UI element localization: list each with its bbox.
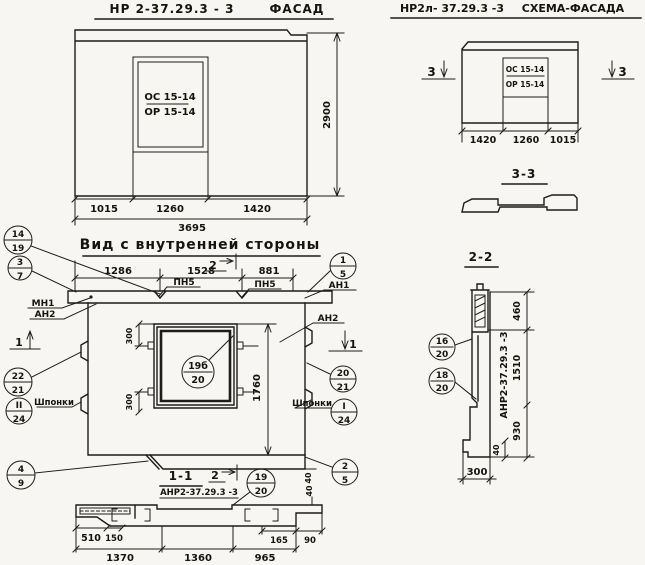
callout-top: 20 — [337, 369, 350, 379]
callout-top: 19 — [255, 473, 268, 483]
section-1-1-dim-965: 965 — [255, 553, 276, 564]
callout-bottom: 21 — [337, 383, 350, 393]
section-2-2-dim-460: 460 — [512, 301, 523, 321]
section-1-1-dim-150: 150 — [105, 534, 123, 544]
section-1-1-stirrups — [112, 509, 278, 521]
facade-dim-1260: 1260 — [156, 204, 184, 215]
section-1-1-dim-510: 510 — [81, 533, 101, 544]
section-2-2-hatch — [475, 295, 485, 327]
inner-section-mark-2: 2 — [209, 259, 217, 272]
facade-window-opening — [133, 57, 208, 152]
facade-window-mark-bottom: ОР 15-14 — [144, 107, 195, 118]
inner-section-mark-1-right-lines — [329, 331, 362, 351]
blueprint-svg: НР 2-37.29.3 - 3 ФАСАД ОС 15-14 ОР 15-14… — [0, 0, 645, 565]
callout-top: 4 — [18, 465, 24, 475]
section-2-2-title: 2-2 — [469, 250, 494, 264]
section-1-1-dim-165-90-line — [259, 528, 325, 534]
schema-section-mark-3-right: 3 — [618, 65, 627, 79]
schema-dim-1420: 1420 — [470, 135, 497, 146]
inner-section-mark-1-right: 1 — [349, 338, 357, 351]
callout-4-9: 4 9 — [7, 461, 148, 489]
callout-22-21: 22 21 — [4, 352, 81, 396]
callout-19-20: 19 20 — [233, 469, 275, 505]
schema-title-code: НР2л- 37.29.3 -3 — [400, 2, 504, 15]
callout-16-20: 16 20 — [429, 334, 455, 360]
inner-pn5-leaders — [159, 287, 281, 297]
facade-window-mark-top: ОС 15-14 — [144, 92, 195, 103]
section-3-3-profile — [462, 195, 577, 212]
facade-dim-total: 3695 — [178, 223, 206, 234]
schema-dim-1015: 1015 — [550, 135, 576, 146]
section-1-1-mark-2: 2 — [211, 469, 219, 482]
callout-top: 22 — [12, 372, 25, 382]
callout-top: 2 — [342, 462, 348, 472]
callout-bottom: 24 — [13, 415, 26, 425]
callout-top: 19б — [188, 361, 208, 372]
inner-top-strip — [68, 291, 332, 303]
schema-window-mark-top: ОС 15-14 — [506, 65, 544, 74]
inner-dim-40: 40 — [304, 472, 313, 484]
section-2-2-callout-leaders — [455, 339, 476, 399]
inner-mn1-anchor-dot — [89, 295, 92, 298]
section-2-2-dim-40-line — [502, 438, 508, 461]
schema-window-opening — [503, 58, 548, 97]
section-2-2-panel-mark: АНР2-37.29.3 -3 — [499, 332, 510, 419]
inner-title: Вид с внутренней стороны — [80, 237, 321, 253]
inner-section-mark-1-left: 1 — [15, 336, 23, 349]
section-2-2-dim-40: 40 — [492, 444, 501, 456]
schema-view: НР2л- 37.29.3 -3 СХЕМА-ФАСАДА ОС 15-14 О… — [391, 2, 641, 146]
section-1-1-dim-main-line — [73, 546, 299, 552]
callout-18-20: 18 20 — [429, 368, 455, 394]
callout-bottom: 20 — [255, 487, 268, 497]
section-1-1-dim-165: 165 — [270, 536, 288, 546]
section-1-1-extension-lines — [76, 513, 322, 552]
callout-bottom: 20 — [436, 350, 449, 360]
section-2-2-dim-930: 930 — [512, 421, 523, 441]
section-1-1-dim-40: 40 — [305, 485, 314, 497]
callout-19b-20: 19б 20 — [182, 336, 233, 388]
section-1-1-dim-90: 90 — [304, 536, 316, 546]
schema-window-mark-bottom: ОР 15-14 — [506, 80, 544, 89]
inner-bottom-lip — [146, 455, 305, 469]
callout-bottom: 21 — [12, 386, 25, 396]
callout-20-21: 20 21 — [307, 363, 356, 393]
inner-dim-300-top: 300 — [125, 327, 134, 344]
schema-title-word: СХЕМА-ФАСАДА — [522, 2, 625, 15]
section-1-1-title: 1-1 — [169, 469, 194, 483]
facade-view: НР 2-37.29.3 - 3 ФАСАД ОС 15-14 ОР 15-14… — [72, 2, 344, 234]
callout-divider — [233, 483, 274, 505]
drawing-sheet: НР 2-37.29.3 - 3 ФАСАД ОС 15-14 ОР 15-14… — [0, 0, 645, 565]
schema-section-mark-3-left: 3 — [427, 65, 436, 79]
section-2-2-dim-line — [488, 289, 534, 461]
facade-dim-line-height — [334, 33, 340, 196]
inner-dim-1286: 1286 — [104, 266, 132, 277]
callout-bottom: 9 — [18, 479, 24, 489]
facade-dim-line-total — [72, 216, 310, 222]
callout-bottom: 24 — [338, 416, 351, 426]
facade-dim-1015: 1015 — [90, 204, 118, 215]
callout-top: I — [342, 402, 345, 412]
inner-dim-1760: 1760 — [252, 374, 263, 402]
section-2-2-profile — [463, 284, 490, 457]
callout-top: II — [16, 401, 23, 411]
section-2-2-dim-300: 300 — [467, 467, 488, 478]
facade-dim-line-segments — [72, 196, 310, 202]
section-3-3-title: 3-3 — [512, 167, 537, 181]
callout-top: 14 — [12, 230, 25, 240]
callout-top: 18 — [436, 371, 449, 381]
section-3-3: 3-3 — [462, 167, 577, 212]
section-2-2-dim-1510: 1510 — [512, 354, 523, 381]
facade-dim-height: 2900 — [322, 101, 333, 129]
inner-view: Вид с внутренней стороны 1286 1528 881 2… — [4, 226, 362, 489]
schema-dim-1260: 1260 — [513, 135, 540, 146]
facade-dim-1420: 1420 — [243, 204, 271, 215]
callout-top: 3 — [17, 258, 23, 268]
callout-bottom: 5 — [342, 476, 348, 486]
inner-dim-881: 881 — [259, 266, 280, 277]
section-1-1: 1-1 2 АНР2-37.29.3 -3 19 20 510 150 165 … — [73, 465, 325, 564]
inner-dim-300-bottom: 300 — [125, 393, 134, 410]
callout-bottom: 19 — [12, 244, 25, 254]
section-1-1-dim-1360: 1360 — [184, 553, 212, 564]
callout-i-24: I 24 — [331, 399, 357, 426]
section-1-1-dim-1370: 1370 — [106, 553, 134, 564]
callout-top: 16 — [436, 337, 449, 347]
facade-title-code: НР 2-37.29.3 - 3 — [110, 2, 235, 16]
callout-3-7: 3 7 — [8, 256, 76, 292]
schema-dim-line — [459, 128, 581, 134]
callout-bottom: 7 — [17, 272, 23, 282]
section-2-2: 2-2 16 20 18 20 АНР2-37.29.3 -3 460 1510… — [429, 250, 534, 484]
callout-bottom: 20 — [191, 375, 205, 386]
inner-dim-300-lines — [136, 321, 154, 415]
callout-bottom: 5 — [340, 270, 346, 280]
section-1-1-subtitle: АНР2-37.29.3 -3 — [160, 488, 238, 498]
callout-top: 1 — [340, 256, 346, 266]
facade-title-word: ФАСАД — [270, 2, 325, 16]
callout-ii-24: II 24 — [6, 398, 32, 425]
callout-bottom: 20 — [436, 384, 449, 394]
